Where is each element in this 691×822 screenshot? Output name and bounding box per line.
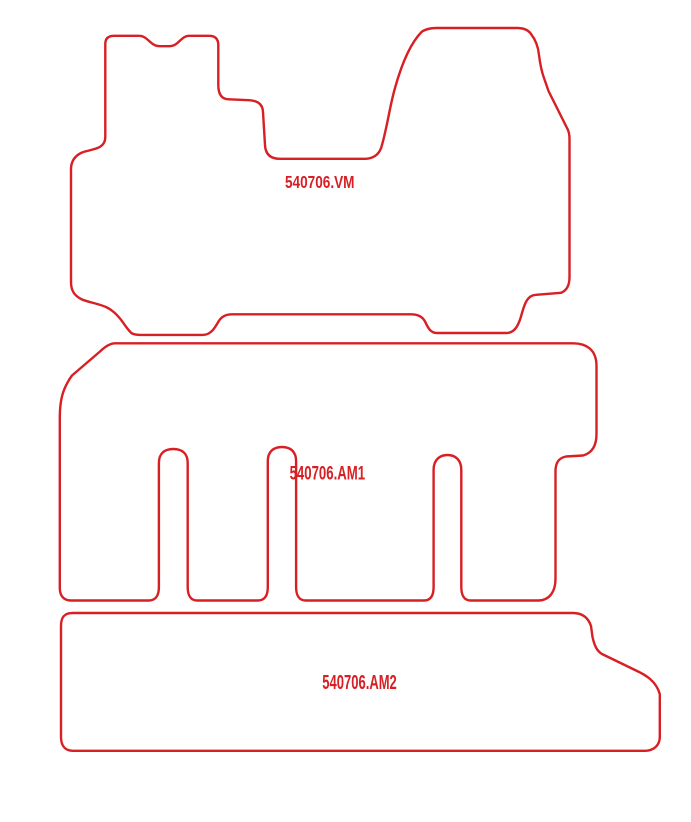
svg-text:540706.VM: 540706.VM: [285, 172, 355, 192]
svg-text:540706.AM2: 540706.AM2: [322, 672, 397, 694]
svg-text:540706.AM1: 540706.AM1: [290, 462, 366, 484]
